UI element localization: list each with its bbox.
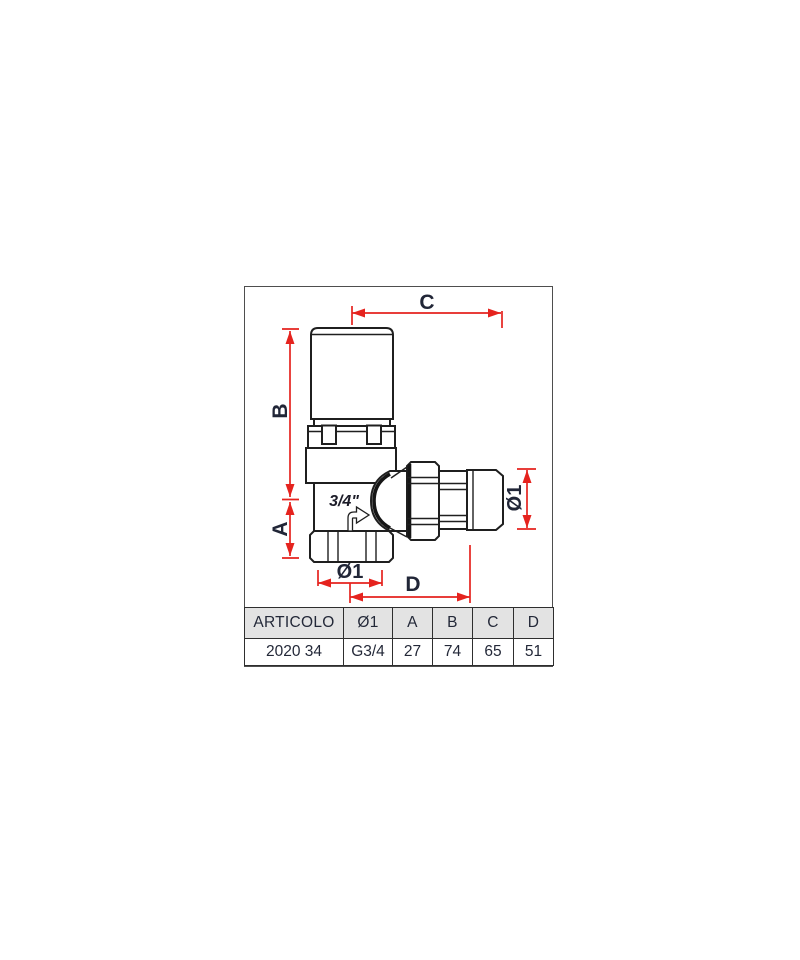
valve-cap (311, 328, 393, 419)
spec-table-data-row: 2020 34 G3/4 27 74 65 51 (245, 639, 554, 666)
cell-a: 27 (393, 639, 433, 666)
dim-a-label: A (269, 521, 292, 536)
cell-b: 74 (433, 639, 473, 666)
cell-c: 65 (473, 639, 514, 666)
dimension-c: C (352, 291, 502, 328)
valve-outline: 3/4" (306, 328, 503, 562)
spec-table: ARTICOLO Ø1 A B C D 2020 34 G3/4 27 74 6… (244, 607, 554, 666)
dim-b-label: B (269, 403, 292, 418)
dim-c-label: C (419, 291, 434, 314)
ring-tab-right (367, 426, 381, 445)
col-header-a: A (393, 608, 433, 639)
cell-articolo: 2020 34 (245, 639, 344, 666)
col-header-c: C (473, 608, 514, 639)
union-nut (407, 462, 439, 540)
dimension-a: A (269, 502, 299, 558)
page-canvas: 3/4" C B A (0, 0, 800, 960)
dimension-b: B (269, 329, 299, 500)
valve-technical-drawing: 3/4" C B A (244, 286, 553, 607)
dimension-dia-right: Ø1 (504, 469, 536, 529)
inlet-nut (310, 531, 393, 562)
col-header-d: D (514, 608, 554, 639)
dia-bottom-label: Ø1 (337, 561, 364, 583)
dim-d-label: D (405, 573, 420, 596)
ring-tab-left (322, 426, 336, 445)
cell-d: 51 (514, 639, 554, 666)
col-header-b: B (433, 608, 473, 639)
spec-table-header-row: ARTICOLO Ø1 A B C D (245, 608, 554, 639)
dia-right-label: Ø1 (504, 485, 526, 512)
col-header-articolo: ARTICOLO (245, 608, 344, 639)
col-header-dia1: Ø1 (344, 608, 393, 639)
union-tailpiece (439, 471, 467, 529)
cell-dia1: G3/4 (344, 639, 393, 666)
size-marking: 3/4" (329, 493, 359, 510)
